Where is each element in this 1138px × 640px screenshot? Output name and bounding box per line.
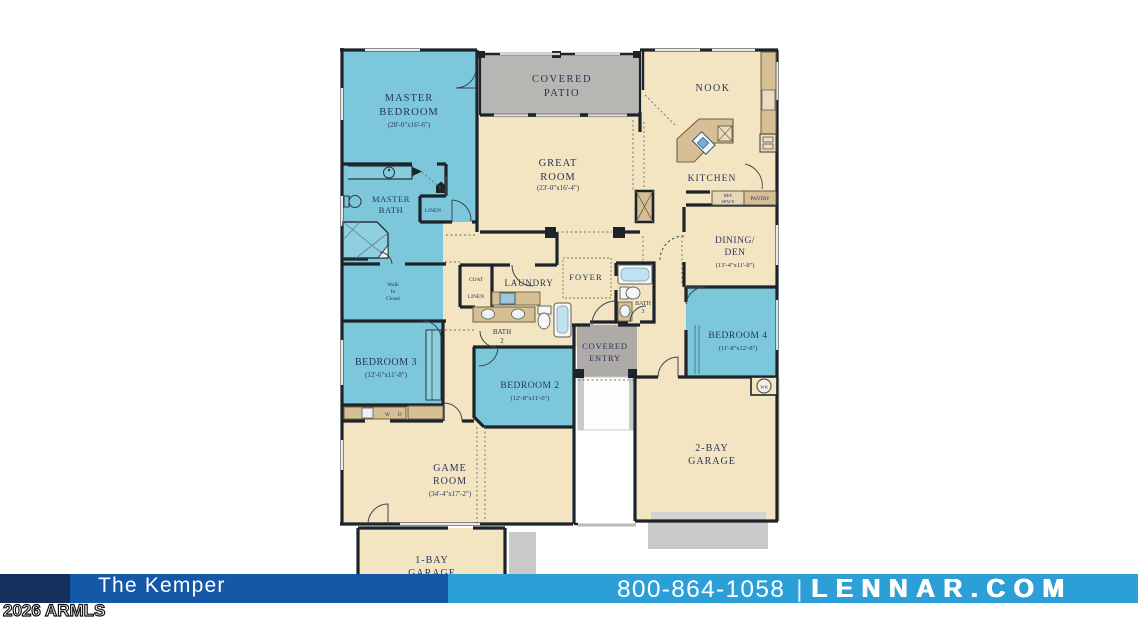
svg-text:GARAGE: GARAGE	[688, 456, 736, 467]
svg-text:(23'-0"x16'-4"): (23'-0"x16'-4")	[537, 184, 580, 192]
svg-text:COVERED: COVERED	[582, 341, 628, 351]
svg-text:PATIO: PATIO	[544, 88, 580, 99]
svg-text:BATH: BATH	[493, 328, 511, 336]
svg-text:BATH: BATH	[379, 205, 404, 215]
svg-text:ROOM: ROOM	[433, 476, 467, 487]
svg-text:MASTER: MASTER	[372, 194, 410, 204]
svg-text:BEDROOM: BEDROOM	[379, 107, 439, 118]
svg-text:GAME: GAME	[433, 463, 466, 474]
svg-text:LINEN: LINEN	[425, 208, 442, 214]
svg-text:MASTER: MASTER	[385, 93, 434, 104]
svg-text:(20'-0"x16'-6"): (20'-0"x16'-6")	[388, 121, 431, 129]
svg-text:DINING/: DINING/	[715, 236, 755, 246]
svg-text:LAUNDRY: LAUNDRY	[504, 278, 553, 288]
svg-text:3: 3	[642, 309, 645, 315]
svg-text:1-BAY: 1-BAY	[415, 555, 449, 566]
svg-text:COVERED: COVERED	[532, 74, 592, 85]
svg-text:COAT: COAT	[469, 277, 484, 283]
svg-text:D: D	[398, 413, 402, 418]
svg-text:LINEN: LINEN	[468, 294, 485, 300]
svg-text:PANTRY: PANTRY	[750, 197, 770, 202]
svg-text:FOYER: FOYER	[569, 272, 603, 282]
svg-text:ENTRY: ENTRY	[589, 353, 621, 363]
svg-text:(12'-8"x11'-6"): (12'-8"x11'-6")	[511, 395, 550, 402]
svg-text:NOOK: NOOK	[696, 83, 731, 94]
svg-text:SPACE: SPACE	[721, 199, 735, 204]
svg-text:(13'-4"x11'-8"): (13'-4"x11'-8")	[716, 262, 755, 269]
svg-text:Closet: Closet	[386, 296, 401, 302]
svg-text:BEDROOM 4: BEDROOM 4	[708, 331, 767, 341]
svg-text:Walk: Walk	[387, 282, 399, 288]
svg-text:WH: WH	[760, 385, 768, 390]
svg-text:REF: REF	[724, 193, 733, 198]
svg-text:(12'-6"x11'-8"): (12'-6"x11'-8")	[365, 371, 407, 379]
svg-text:W: W	[385, 413, 390, 418]
svg-text:BEDROOM 3: BEDROOM 3	[355, 357, 417, 368]
svg-text:(11'-8"x12'-8"): (11'-8"x12'-8")	[719, 345, 758, 352]
svg-text:BEDROOM 2: BEDROOM 2	[500, 381, 559, 391]
svg-text:KITCHEN: KITCHEN	[688, 174, 737, 184]
svg-text:2: 2	[500, 337, 504, 345]
svg-text:GREAT: GREAT	[539, 158, 578, 169]
svg-text:(34'-4"x17'-2"): (34'-4"x17'-2")	[429, 490, 472, 498]
svg-text:In: In	[391, 289, 396, 295]
svg-text:DEN: DEN	[724, 248, 745, 258]
svg-text:2-BAY: 2-BAY	[695, 443, 729, 454]
svg-text:ROOM: ROOM	[540, 172, 576, 183]
